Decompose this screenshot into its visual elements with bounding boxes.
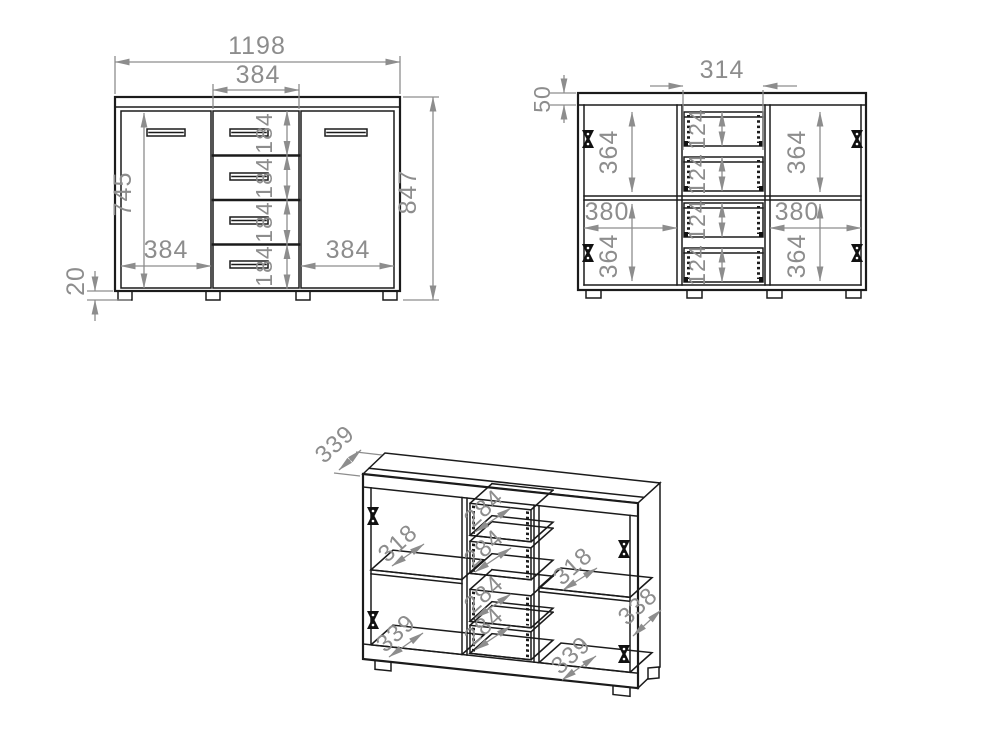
dim-label: 380	[775, 198, 820, 226]
dim-label: 847	[394, 170, 422, 215]
dim-label: 339	[310, 420, 360, 469]
dim-label: 384	[144, 236, 189, 264]
dim-floor-lower-left: 339	[371, 609, 423, 658]
internal-view: 50 314 364 380 364 364 380 364	[529, 56, 866, 298]
dim-label: 124	[684, 153, 710, 194]
hinge-icon	[367, 507, 379, 525]
dim-label: 339	[371, 609, 421, 658]
hinge-icon	[618, 540, 630, 558]
dim-upper-right-height: 364	[783, 112, 820, 192]
dim-label: 1198	[228, 32, 286, 60]
dim-label: 364	[595, 130, 623, 175]
foot	[383, 291, 397, 300]
foot	[118, 291, 132, 300]
dim-label: 20	[62, 266, 90, 296]
front-view: 1198 384 745 184 184 184 184 384 384	[62, 32, 439, 321]
dim-floor-lower-right: 339	[546, 631, 596, 680]
hinge-icon	[367, 611, 379, 629]
dim-label: 184	[251, 157, 277, 198]
foot	[206, 291, 220, 300]
door-handle	[325, 129, 367, 136]
dim-label: 384	[326, 236, 371, 264]
dim-label: 184	[251, 201, 277, 242]
door-handle	[147, 129, 185, 136]
dim-label: 339	[546, 631, 596, 680]
dim-label: 184	[251, 112, 277, 153]
dim-upper-left-height: 364	[595, 112, 632, 192]
dim-label: 318	[548, 542, 598, 591]
dim-lower-right: 380 364	[770, 198, 861, 281]
dim-label: 745	[109, 172, 137, 217]
dim-label: 184	[251, 245, 277, 286]
dim-label: 124	[684, 244, 710, 285]
dim-right-door-width: 384	[301, 236, 394, 266]
hinge-icon	[618, 645, 630, 663]
dim-shelf-upper-right: 318	[548, 542, 598, 591]
dim-label: 364	[783, 234, 811, 279]
dim-box-heights: 124 124 124 124	[684, 108, 722, 285]
dim-inner-drawer-width: 314	[650, 56, 797, 150]
dim-label: 364	[595, 234, 623, 279]
dim-label: 314	[700, 56, 745, 84]
technical-drawing-page: 1198 384 745 184 184 184 184 384 384	[0, 0, 989, 741]
foot	[687, 290, 702, 298]
drawing-canvas: 1198 384 745 184 184 184 184 384 384	[0, 0, 989, 741]
dim-label: 50	[529, 85, 555, 113]
dim-top-panel: 50	[529, 75, 576, 123]
foot	[586, 290, 601, 298]
dim-label: 124	[684, 108, 710, 149]
perspective-view: 339 318 339 284 284 284 284 318 339	[310, 420, 663, 699]
dim-label: 384	[236, 61, 281, 89]
dim-left-door-width: 384	[121, 236, 211, 266]
dim-label: 380	[585, 198, 630, 226]
foot	[296, 291, 310, 300]
foot	[648, 667, 659, 679]
dim-lower-left: 380 364	[584, 198, 677, 281]
foot	[767, 290, 782, 298]
dim-label: 364	[783, 130, 811, 175]
foot	[613, 686, 630, 697]
foot	[846, 290, 861, 298]
dim-drawer-col-width: 384	[213, 61, 299, 109]
dim-label: 124	[684, 199, 710, 240]
